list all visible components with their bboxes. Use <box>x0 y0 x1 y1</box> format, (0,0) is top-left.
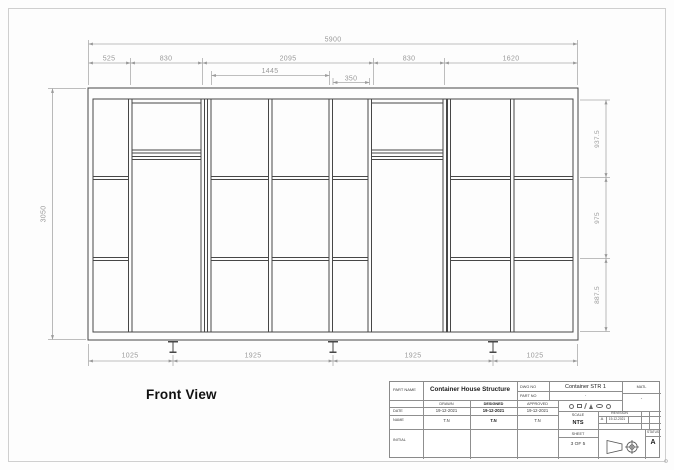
circle-icon <box>606 404 611 409</box>
dim-label-total-height: 3050 <box>41 206 48 223</box>
dwg-no-value: Container STR 1 <box>549 384 622 390</box>
circle-icon <box>569 404 574 409</box>
dim-label-top-seg-1: 830 <box>160 56 173 63</box>
approved-label: APPROVED <box>517 402 558 406</box>
dimension-labels: 5900 525 830 2095 830 1620 1445 350 3050… <box>41 37 602 360</box>
title-block: PART NAME Container House Structure DWG … <box>389 381 660 458</box>
support-feet <box>168 342 498 353</box>
container-frame-structure <box>88 88 578 352</box>
approved-name: T.N <box>517 419 558 424</box>
ellipse-icon <box>596 404 603 409</box>
approved-date: 19-12-2021 <box>517 409 558 414</box>
dim-label-right-seg-1: 975 <box>594 212 601 224</box>
drawn-date: 19-12-2021 <box>423 409 470 414</box>
designed-date: 19-12-2021 <box>470 409 517 414</box>
part-name-value: Container House Structure <box>423 387 517 394</box>
designed-label: DESIGNED <box>470 402 517 406</box>
part-name-label: PART NAME <box>393 388 416 392</box>
drawing-sheet: 5900 525 830 2095 830 1620 1445 350 3050… <box>0 0 674 470</box>
dim-label-top-seg-4: 1620 <box>503 56 520 63</box>
revision-date: 19-12-2021 <box>606 418 628 422</box>
dwg-no-label: DWG NO <box>520 385 536 389</box>
part-no-label: PART NO <box>520 394 536 398</box>
sheet-value: 3 OF 5 <box>558 442 598 447</box>
name-label: NAME <box>393 418 404 422</box>
dim-label-bottom-seg-3: 1025 <box>527 353 544 360</box>
date-label: DATE <box>393 409 403 413</box>
scale-value: NTS <box>558 420 598 426</box>
revision-label: REVISION <box>598 412 641 416</box>
matl-value: - <box>622 397 661 402</box>
designed-name: T.N <box>470 419 517 424</box>
sheet-label: SHEET <box>558 432 598 436</box>
status-label: STATUS <box>645 431 661 435</box>
triangle-icon <box>589 404 593 409</box>
frame-posts <box>129 99 515 332</box>
scale-label: SCALE <box>558 413 598 417</box>
dim-label-bottom-seg-1: 1925 <box>245 353 262 360</box>
dim-label-sub-seg-0: 1445 <box>262 68 279 75</box>
square-icon <box>577 404 582 409</box>
initial-label: INITIAL <box>393 438 406 442</box>
dim-label-sub-seg-1: 350 <box>345 76 358 83</box>
dim-label-right-seg-2: 887.5 <box>594 286 601 304</box>
dim-label-bottom-seg-2: 1925 <box>405 353 422 360</box>
dim-label-bottom-seg-0: 1025 <box>122 353 139 360</box>
status-value: A <box>645 439 661 447</box>
opening-headers <box>132 103 443 160</box>
view-title: Front View <box>146 387 217 402</box>
finish-symbols <box>558 401 622 411</box>
dim-label-top-seg-3: 830 <box>403 56 416 63</box>
slash-icon <box>584 403 587 409</box>
dim-label-total-width: 5900 <box>325 37 342 44</box>
dim-label-top-seg-2: 2095 <box>280 56 297 63</box>
matl-label: MATL <box>622 385 661 389</box>
dim-label-right-seg-0: 937.5 <box>594 130 601 148</box>
revision-value: A <box>598 417 606 421</box>
drawn-label: DRAWN <box>423 402 470 406</box>
drawn-name: T.N <box>423 419 470 424</box>
part-no-value: - <box>549 393 622 397</box>
third-angle-projection-icon <box>602 438 642 456</box>
dim-label-top-seg-0: 525 <box>103 56 116 63</box>
